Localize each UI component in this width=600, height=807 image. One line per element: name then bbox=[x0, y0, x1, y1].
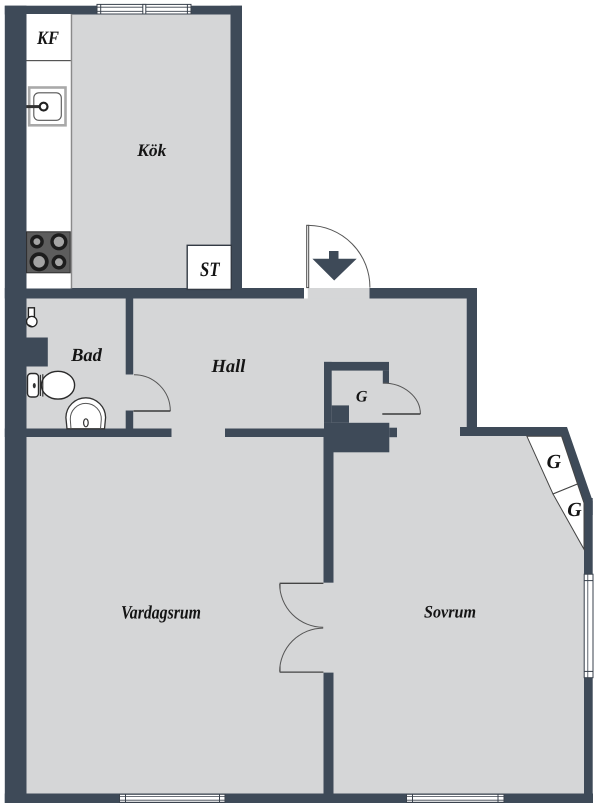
svg-text:Bad: Bad bbox=[70, 346, 103, 366]
svg-text:Kök: Kök bbox=[136, 140, 166, 160]
svg-text:KF: KF bbox=[36, 28, 59, 49]
svg-text:Vardagsrum: Vardagsrum bbox=[121, 603, 201, 624]
svg-text:G: G bbox=[567, 499, 582, 521]
svg-text:Sovrum: Sovrum bbox=[424, 602, 476, 622]
svg-text:G: G bbox=[547, 451, 562, 473]
svg-text:G: G bbox=[356, 389, 368, 406]
svg-text:ST: ST bbox=[200, 259, 221, 281]
svg-text:Hall: Hall bbox=[211, 357, 247, 377]
